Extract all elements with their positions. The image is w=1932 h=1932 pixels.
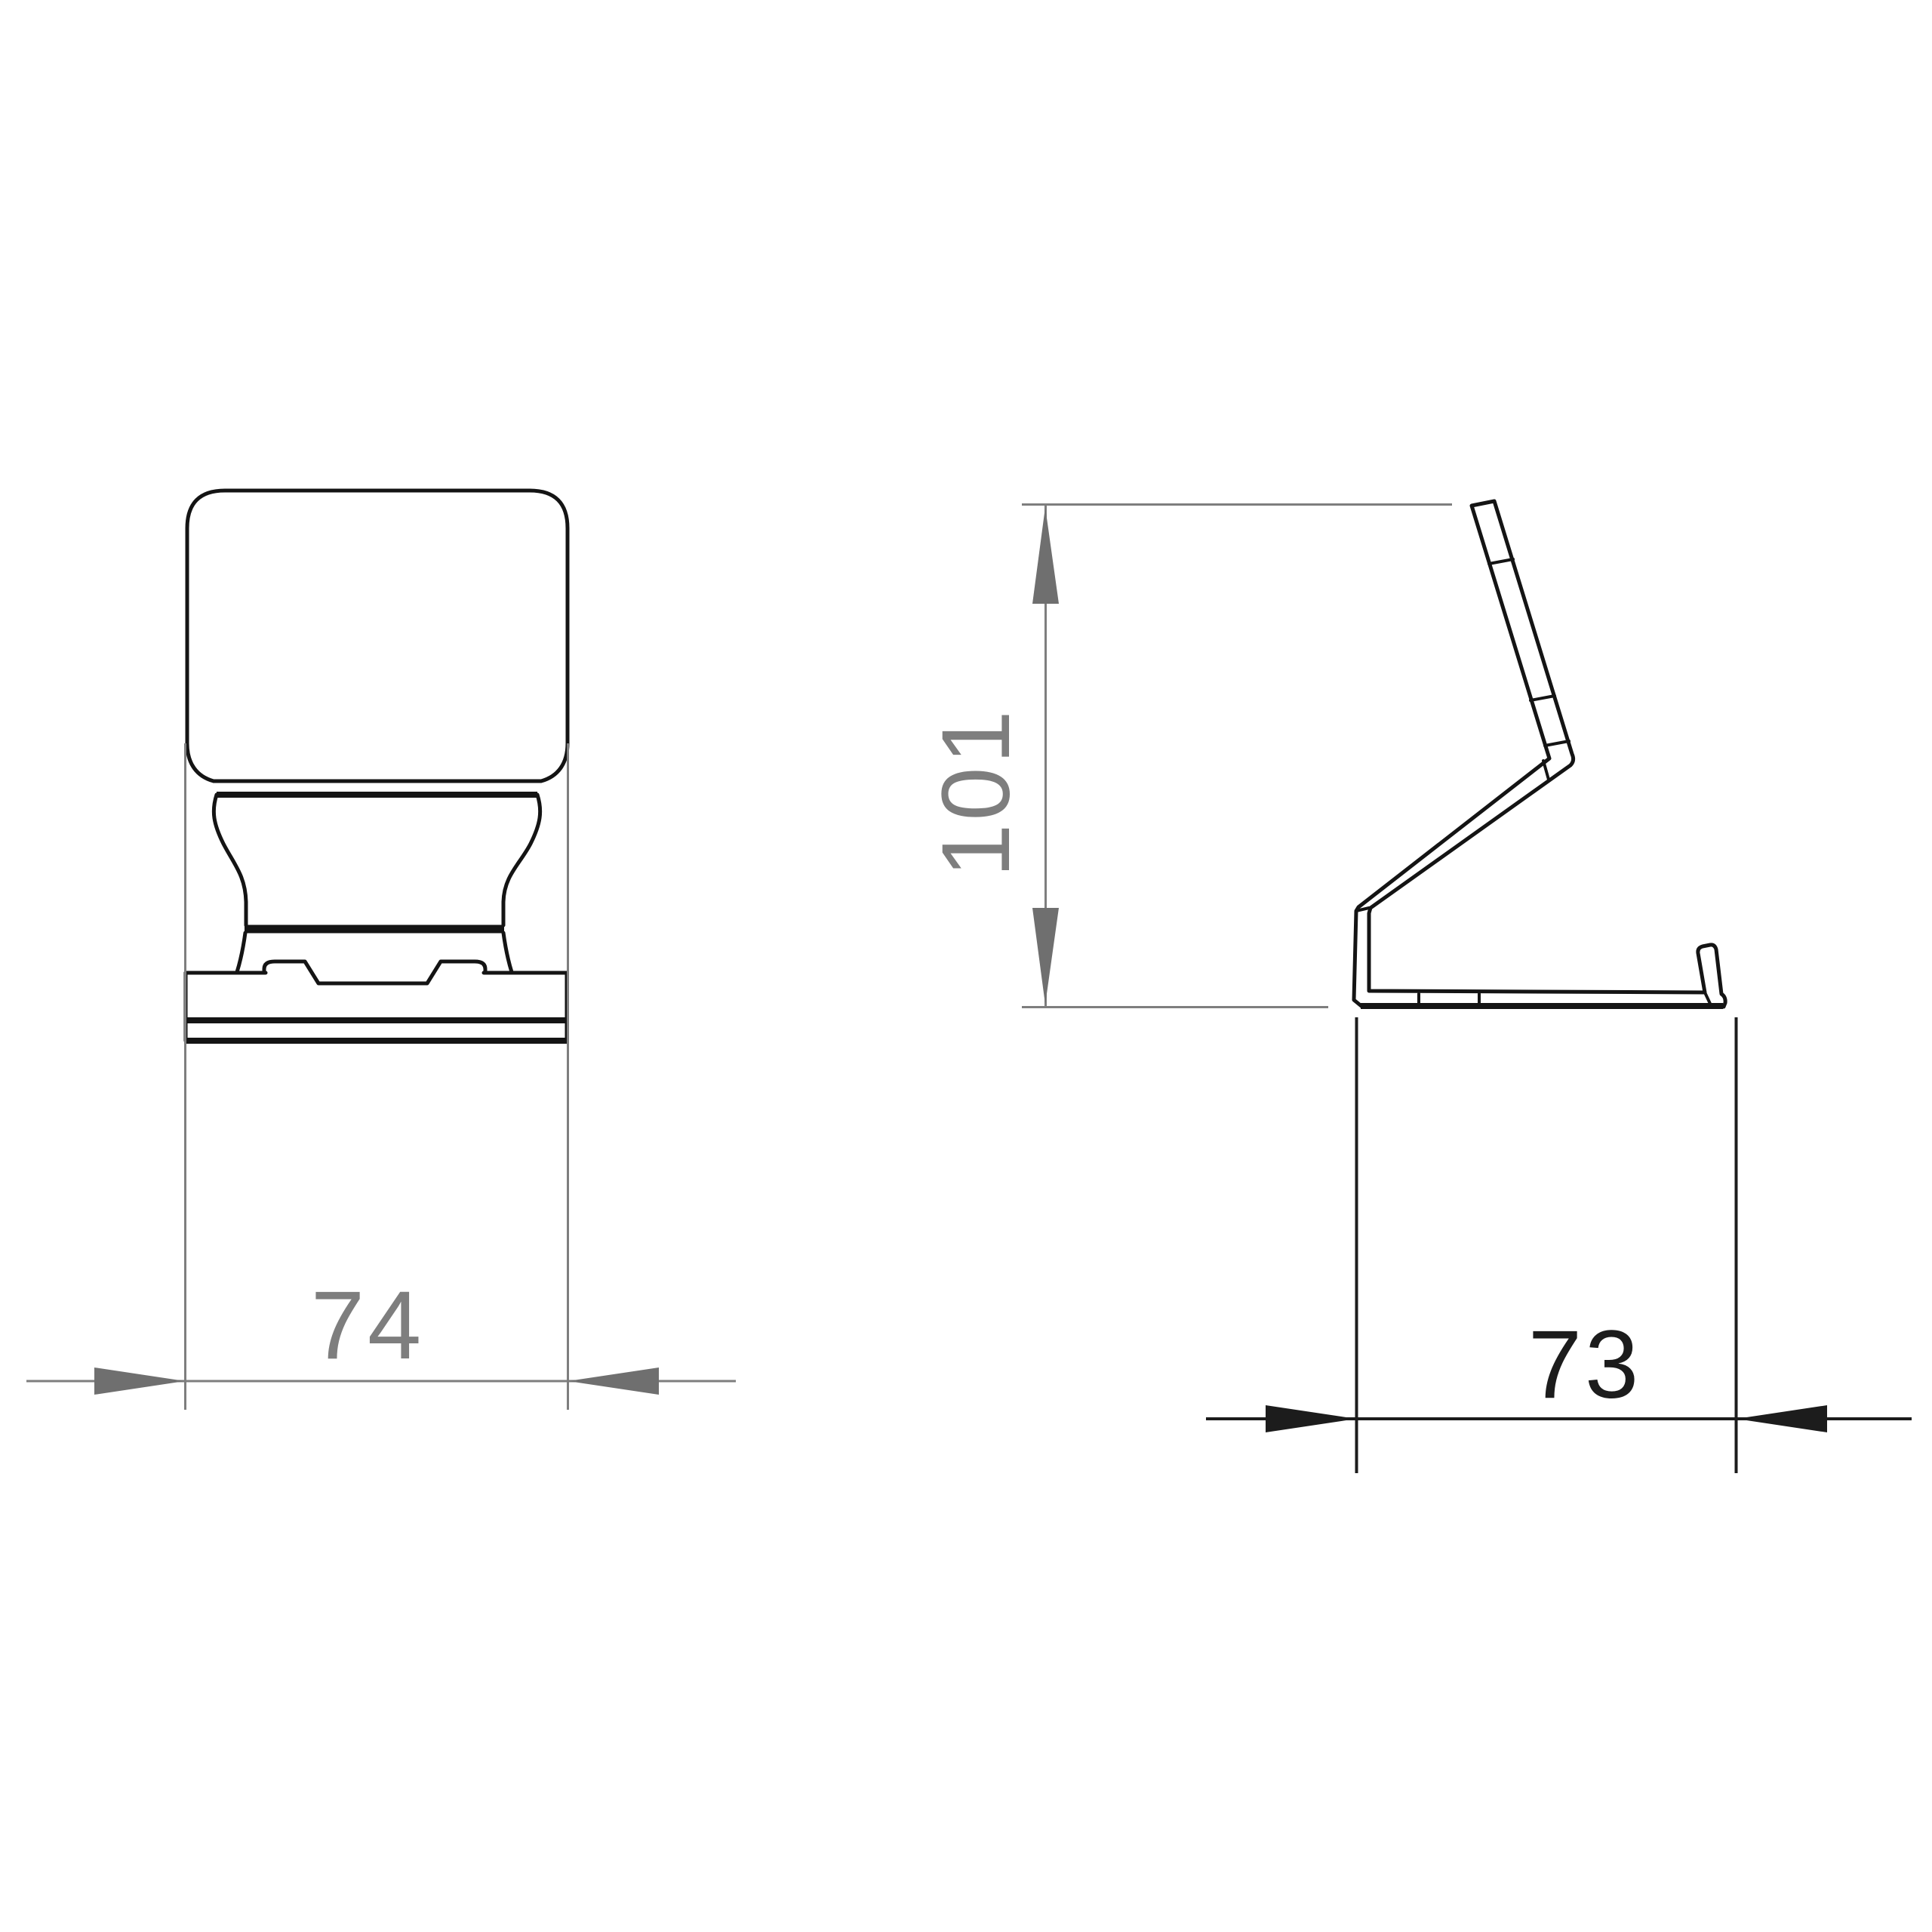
front-neck-left [214, 795, 246, 925]
front-stem-flare-right [503, 933, 512, 972]
drawing-canvas: 74 101 73 [0, 0, 1932, 1932]
dimension-drawing: 74 101 73 [0, 0, 1932, 1932]
height-dimension-label: 101 [922, 707, 1030, 878]
width-arrow-left-icon [94, 1367, 185, 1395]
depth-dimension-label: 73 [1528, 1311, 1641, 1419]
front-back-plate-outline [187, 491, 568, 781]
side-view [1354, 501, 1725, 1007]
dimension-side-height: 101 [922, 505, 1452, 1008]
front-neck-right [503, 795, 540, 925]
front-stem-flare-left [237, 933, 245, 972]
front-view [186, 491, 568, 1041]
dimension-side-depth: 73 [1206, 1017, 1912, 1473]
depth-arrow-left-icon [1266, 1405, 1356, 1432]
front-foot-plate [264, 961, 485, 983]
width-arrow-right-icon [568, 1367, 659, 1395]
height-arrow-up-icon [1032, 507, 1059, 604]
dimension-front-width: 74 [26, 743, 736, 1410]
side-profile-outline [1354, 501, 1725, 1007]
height-arrow-down-icon [1032, 908, 1059, 1004]
width-dimension-label: 74 [311, 1272, 424, 1380]
depth-arrow-right-icon [1737, 1405, 1827, 1432]
